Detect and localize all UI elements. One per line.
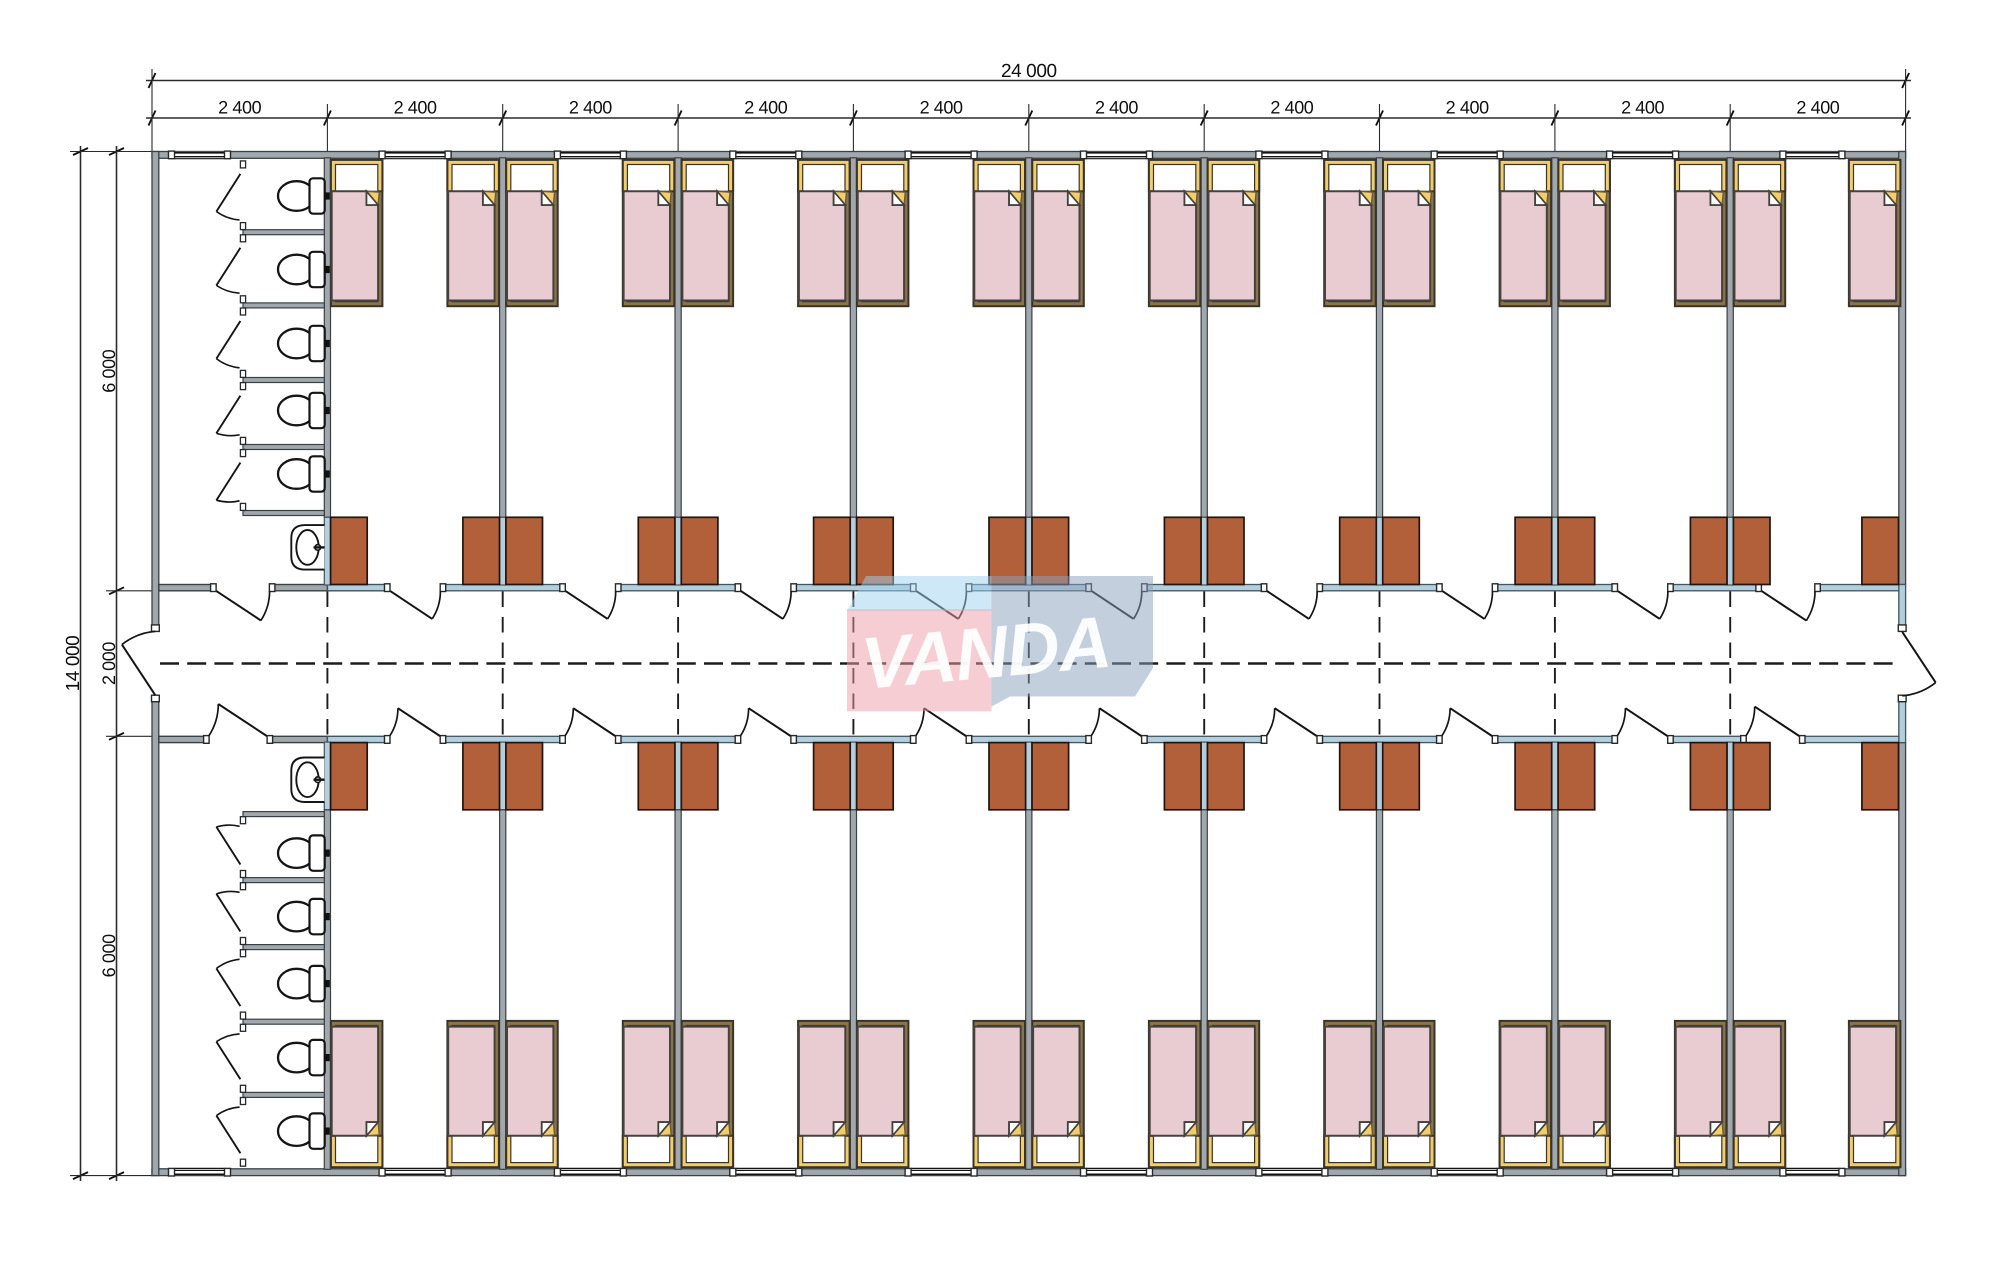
svg-text:2 400: 2 400	[1446, 98, 1489, 118]
svg-text:2 400: 2 400	[218, 98, 261, 118]
svg-text:2 400: 2 400	[569, 98, 612, 118]
svg-text:2 400: 2 400	[920, 98, 963, 118]
svg-text:2 400: 2 400	[1270, 98, 1313, 118]
svg-text:2 400: 2 400	[1095, 98, 1138, 118]
svg-text:2 400: 2 400	[1796, 98, 1839, 118]
svg-text:24 000: 24 000	[1001, 61, 1057, 82]
svg-text:14 000: 14 000	[63, 636, 84, 692]
svg-text:2 000: 2 000	[99, 642, 119, 685]
svg-text:2 400: 2 400	[1621, 98, 1664, 118]
svg-text:2 400: 2 400	[394, 98, 437, 118]
svg-text:2 400: 2 400	[744, 98, 787, 118]
svg-text:6 000: 6 000	[99, 349, 119, 392]
svg-text:6 000: 6 000	[99, 934, 119, 977]
